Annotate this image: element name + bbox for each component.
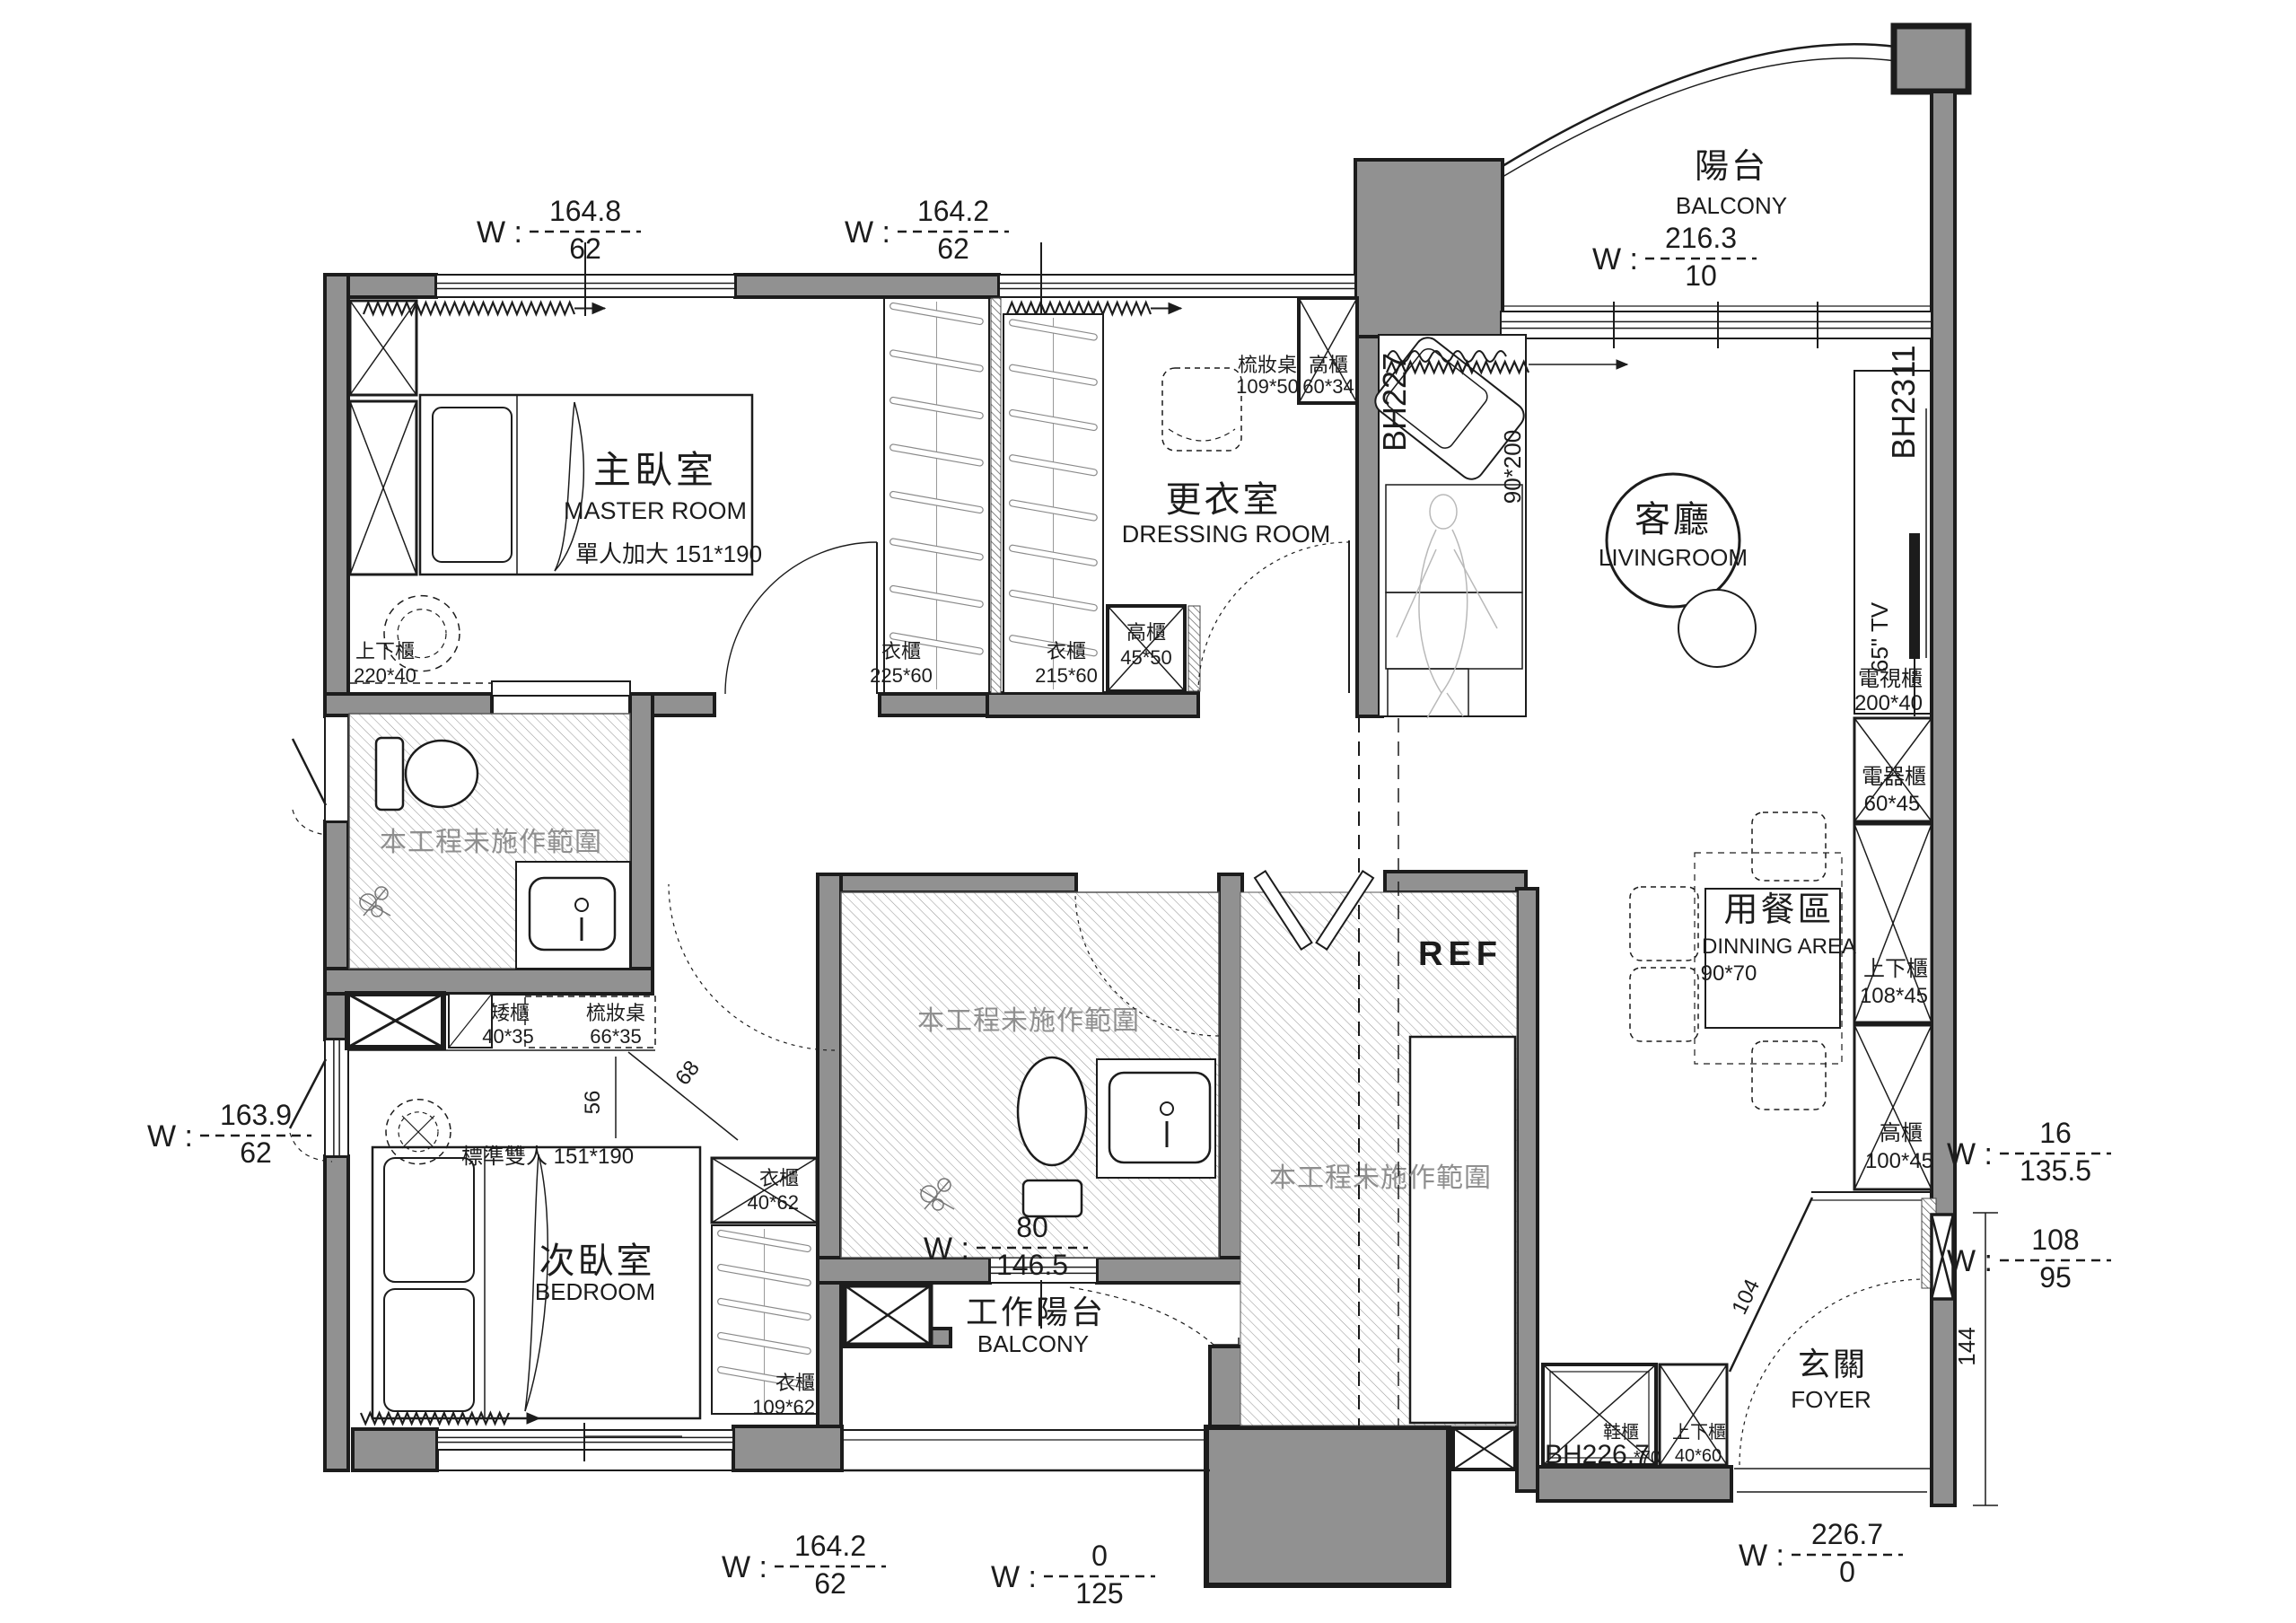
svg-text:REF: REF (1418, 935, 1503, 973)
svg-text:上下櫃: 上下櫃 (1863, 957, 1928, 981)
svg-text:W :: W : (477, 215, 522, 250)
svg-text:BALCONY: BALCONY (977, 1330, 1089, 1357)
svg-text:62: 62 (569, 232, 601, 265)
svg-text:60*34: 60*34 (1302, 375, 1354, 398)
svg-text:62: 62 (240, 1136, 272, 1169)
svg-text:衣櫃: 衣櫃 (759, 1167, 799, 1189)
svg-text:216.3: 216.3 (1665, 222, 1737, 254)
svg-text:10: 10 (1685, 259, 1717, 292)
svg-text:陽台: 陽台 (1695, 148, 1768, 186)
svg-text:次臥室: 次臥室 (539, 1241, 655, 1281)
svg-text:高櫃: 高櫃 (1126, 621, 1166, 644)
svg-text:玄關: 玄關 (1798, 1346, 1868, 1382)
svg-text:226.7: 226.7 (1811, 1518, 1883, 1550)
svg-text:BH2311: BH2311 (1885, 345, 1922, 459)
svg-text:單人加大 151*190: 單人加大 151*190 (575, 540, 762, 567)
svg-text:本工程未施作範圍: 本工程未施作範圍 (917, 1006, 1140, 1036)
svg-text:W :: W : (991, 1560, 1037, 1594)
svg-text:BEDROOM: BEDROOM (535, 1278, 655, 1305)
svg-text:W :: W : (1947, 1137, 1993, 1171)
svg-text:135.5: 135.5 (2020, 1154, 2091, 1187)
svg-text:上下櫃: 上下櫃 (1672, 1422, 1726, 1443)
svg-text:62: 62 (937, 232, 969, 265)
svg-text:客廳: 客廳 (1634, 500, 1712, 540)
svg-text:40*60: 40*60 (1675, 1446, 1722, 1466)
svg-text:梳妝桌: 梳妝桌 (586, 1002, 645, 1024)
svg-text:163.9: 163.9 (220, 1099, 292, 1131)
svg-text:主臥室: 主臥室 (593, 449, 717, 491)
svg-text:144: 144 (1953, 1327, 1980, 1365)
svg-text:16: 16 (2039, 1117, 2072, 1149)
svg-text:220*40: 220*40 (354, 664, 416, 687)
svg-text:215*60: 215*60 (1035, 664, 1098, 687)
svg-text:工作陽台: 工作陽台 (966, 1294, 1106, 1330)
svg-text:60*45: 60*45 (1864, 792, 1921, 816)
svg-text:108*45: 108*45 (1860, 984, 1928, 1008)
svg-text:W :: W : (845, 215, 890, 250)
svg-text:95: 95 (2039, 1261, 2072, 1294)
svg-text:更衣室: 更衣室 (1166, 480, 1282, 520)
svg-text:62: 62 (814, 1567, 846, 1600)
svg-text:100*45: 100*45 (1865, 1149, 1933, 1173)
svg-text:90*70: 90*70 (1701, 961, 1757, 986)
svg-text:146.5: 146.5 (996, 1249, 1068, 1281)
svg-text:108: 108 (2031, 1224, 2079, 1256)
svg-text:W :: W : (147, 1119, 193, 1154)
svg-text:電器櫃: 電器櫃 (1862, 765, 1926, 789)
svg-text:矮櫃: 矮櫃 (490, 1002, 530, 1024)
svg-text:FOYER: FOYER (1791, 1386, 1871, 1413)
svg-text:164.8: 164.8 (549, 195, 621, 227)
svg-text:本工程未施作範圍: 本工程未施作範圍 (1269, 1163, 1492, 1193)
svg-text:80: 80 (1016, 1211, 1048, 1243)
svg-text:225*60: 225*60 (870, 664, 933, 687)
svg-text:90*200: 90*200 (1499, 430, 1526, 504)
svg-text:用餐區: 用餐區 (1723, 891, 1834, 929)
svg-text:高櫃: 高櫃 (1309, 354, 1348, 376)
svg-text:109*62: 109*62 (752, 1396, 815, 1418)
svg-text:上下櫃: 上下櫃 (355, 640, 415, 662)
svg-text:109*50: 109*50 (1236, 375, 1299, 398)
svg-text:MASTER ROOM: MASTER ROOM (564, 497, 747, 524)
svg-text:0: 0 (1839, 1556, 1855, 1588)
svg-text:56: 56 (581, 1091, 605, 1115)
svg-text:200*40: 200*40 (1854, 691, 1923, 715)
svg-text:164.2: 164.2 (794, 1530, 866, 1562)
svg-text:梳妝桌: 梳妝桌 (1238, 354, 1297, 376)
svg-text:125: 125 (1075, 1577, 1123, 1610)
svg-text:65" TV: 65" TV (1866, 601, 1893, 672)
svg-text:標準雙人 151*190: 標準雙人 151*190 (461, 1145, 634, 1169)
svg-text:W :: W : (1739, 1539, 1784, 1573)
svg-text:高櫃: 高櫃 (1880, 1121, 1923, 1145)
svg-text:W :: W : (924, 1232, 969, 1266)
svg-text:40*35: 40*35 (482, 1025, 534, 1048)
svg-text:40*62: 40*62 (747, 1191, 799, 1214)
svg-text:衣櫃: 衣櫃 (1047, 640, 1086, 662)
svg-text:本工程未施作範圍: 本工程未施作範圍 (380, 828, 602, 857)
svg-text:W :: W : (722, 1550, 767, 1584)
svg-text:W :: W : (1592, 242, 1638, 276)
svg-text:DRESSING ROOM: DRESSING ROOM (1122, 521, 1331, 548)
svg-text:BH227: BH227 (1376, 353, 1413, 452)
svg-text:66*35: 66*35 (590, 1025, 642, 1048)
svg-text:0: 0 (1091, 1540, 1108, 1572)
svg-text:衣櫃: 衣櫃 (776, 1372, 815, 1394)
svg-text:DINNING AREA: DINNING AREA (1702, 934, 1856, 959)
svg-text:45*50: 45*50 (1120, 646, 1172, 669)
svg-text:衣櫃: 衣櫃 (881, 640, 921, 662)
svg-text:LIVINGROOM: LIVINGROOM (1599, 544, 1748, 571)
svg-text:BALCONY: BALCONY (1676, 192, 1787, 219)
svg-text:164.2: 164.2 (917, 195, 989, 227)
svg-text:電視櫃: 電視櫃 (1858, 667, 1923, 691)
svg-text:*70: *70 (1634, 1448, 1661, 1468)
